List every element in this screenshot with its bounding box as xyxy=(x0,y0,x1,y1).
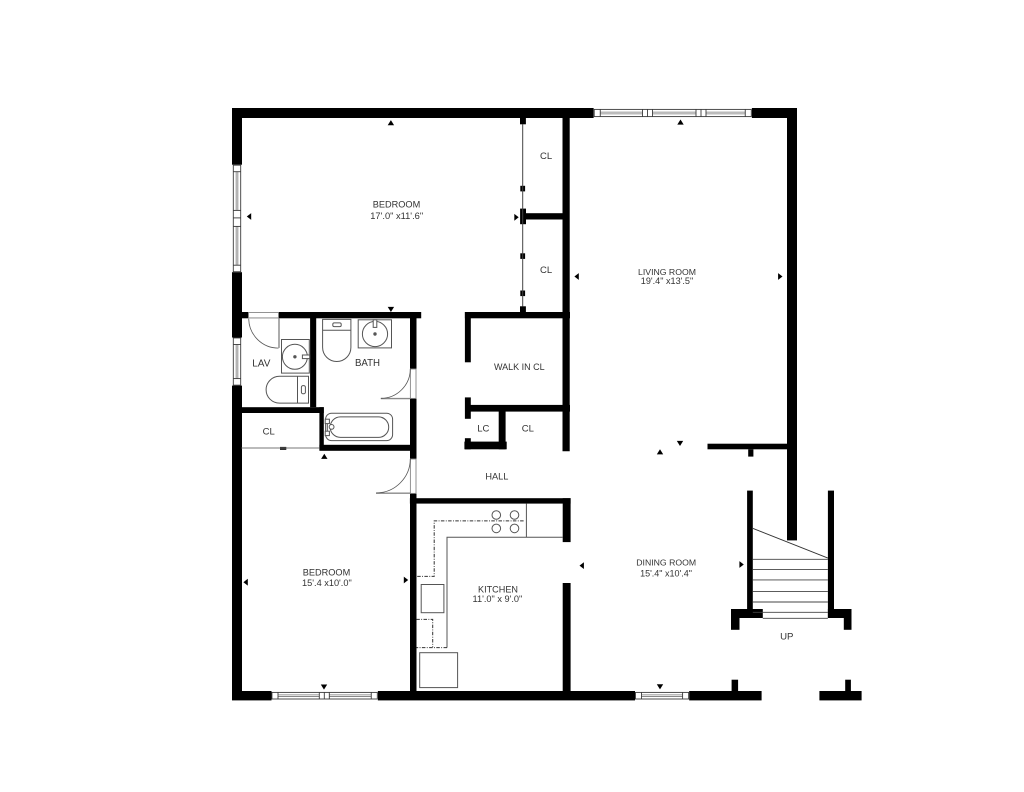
svg-text:UP: UP xyxy=(780,631,793,642)
svg-text:CL: CL xyxy=(540,151,552,162)
svg-text:LAV: LAV xyxy=(252,358,270,369)
svg-text:15'.4" x10'.4": 15'.4" x10'.4" xyxy=(640,568,692,578)
svg-text:11'.0" x 9'.0": 11'.0" x 9'.0" xyxy=(473,594,523,604)
svg-text:WALK IN CL: WALK IN CL xyxy=(494,362,545,372)
svg-text:LC: LC xyxy=(477,424,489,435)
svg-text:BEDROOM: BEDROOM xyxy=(373,200,420,210)
svg-text:KITCHEN: KITCHEN xyxy=(478,584,518,594)
svg-text:HALL: HALL xyxy=(485,472,508,482)
svg-text:19'.4" x13'.5": 19'.4" x13'.5" xyxy=(641,276,693,286)
svg-text:17'.0" x11'.6": 17'.0" x11'.6" xyxy=(370,211,423,221)
svg-text:CL: CL xyxy=(522,424,534,435)
svg-text:15'.4 x10'.0": 15'.4 x10'.0" xyxy=(302,578,352,588)
svg-text:CL: CL xyxy=(263,427,275,438)
svg-text:BEDROOM: BEDROOM xyxy=(303,567,350,577)
svg-text:CL: CL xyxy=(540,265,552,276)
svg-text:DINING ROOM: DINING ROOM xyxy=(636,558,696,568)
svg-text:BATH: BATH xyxy=(355,358,380,369)
